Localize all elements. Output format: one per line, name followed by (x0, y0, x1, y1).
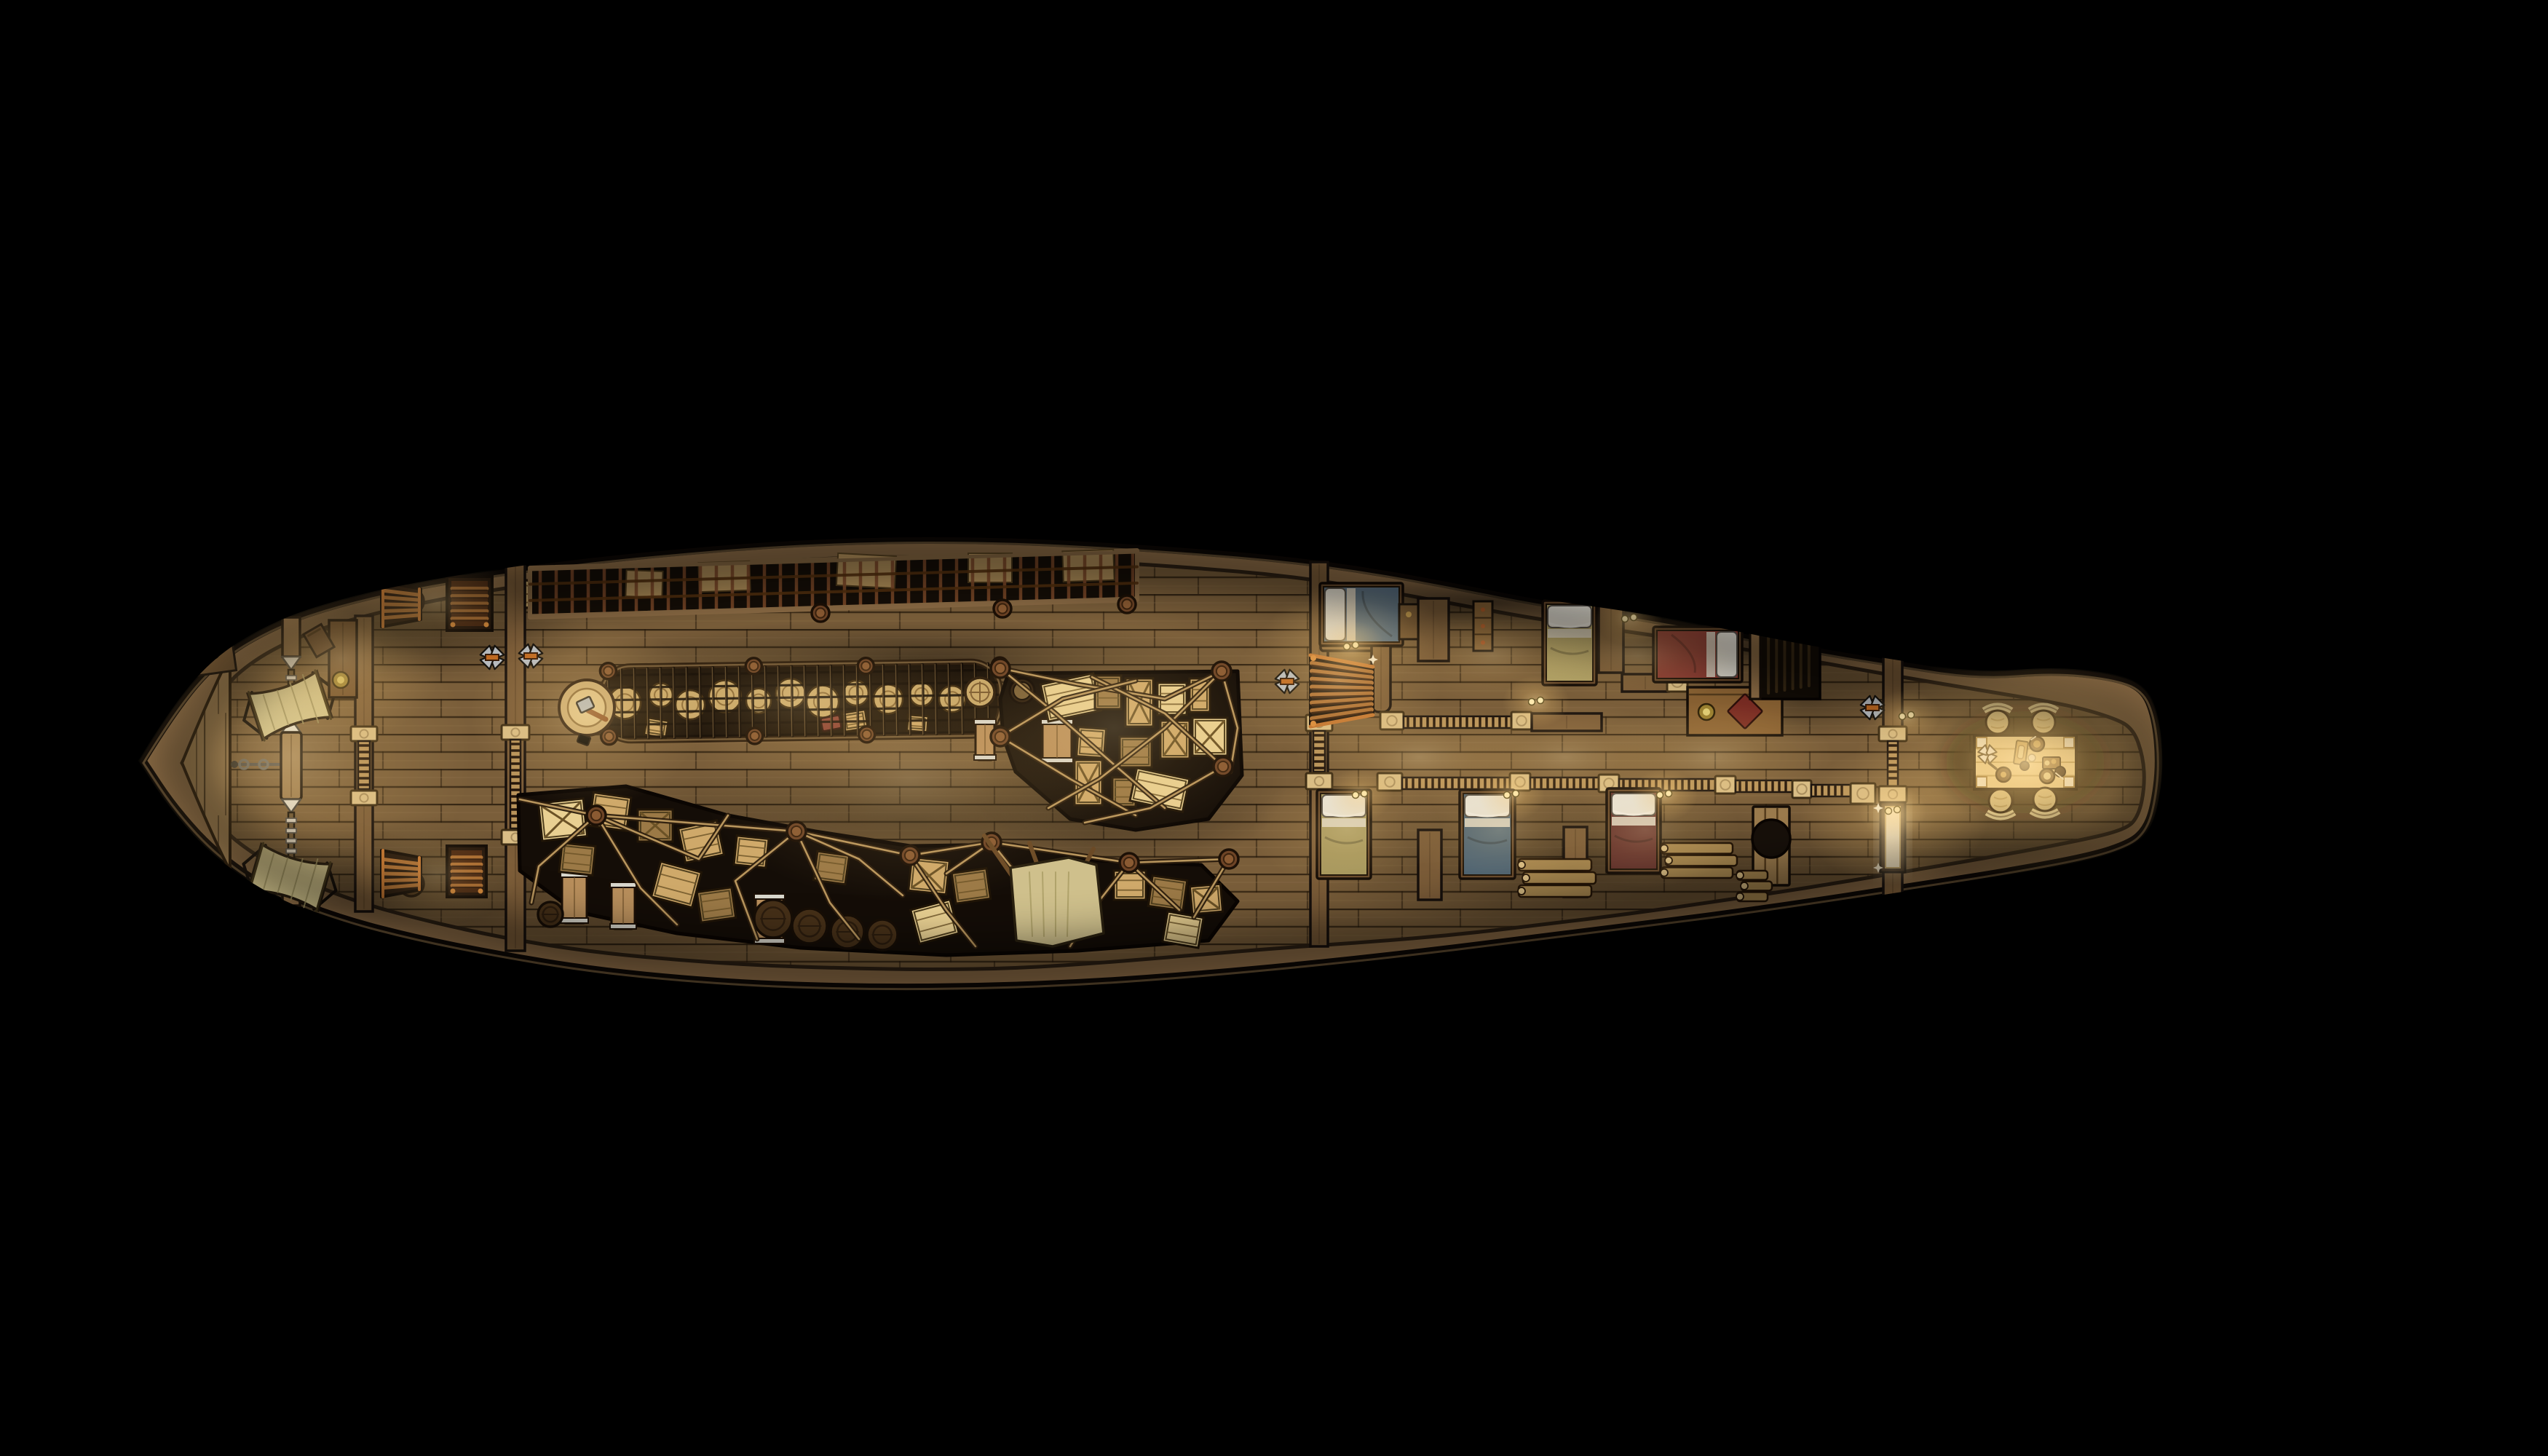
map-canvas (0, 0, 2548, 1456)
ship-map-svg (0, 0, 2548, 1456)
outer-black (0, 0, 2548, 1456)
